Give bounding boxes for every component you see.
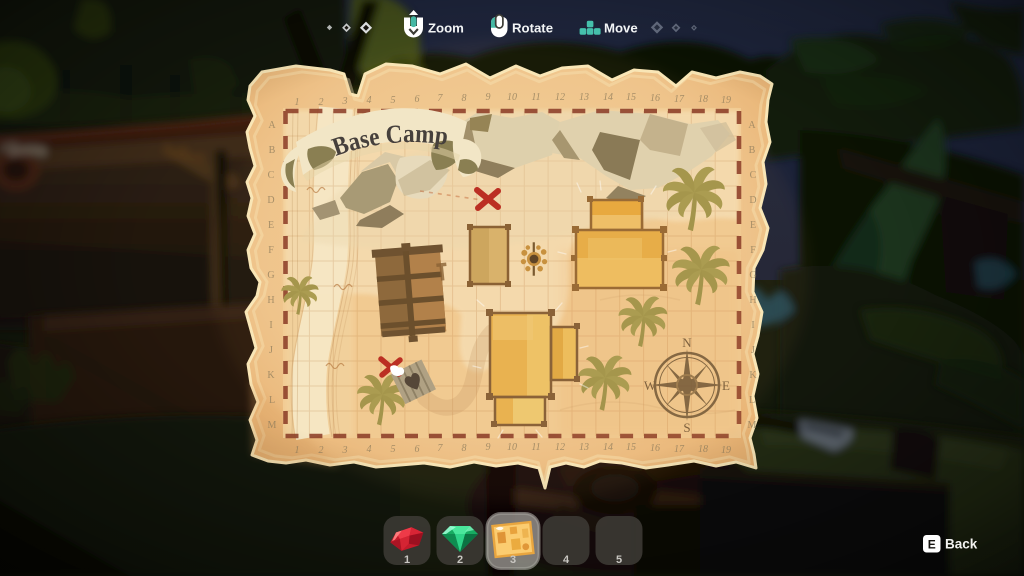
svg-text:4: 4: [563, 554, 570, 566]
svg-text:E: E: [928, 538, 936, 552]
svg-text:Back: Back: [945, 537, 978, 552]
svg-text:Zoom: Zoom: [428, 21, 464, 36]
svg-text:Rotate: Rotate: [512, 21, 553, 36]
svg-text:Move: Move: [604, 21, 638, 36]
svg-text:3: 3: [510, 554, 516, 566]
svg-text:2: 2: [457, 554, 463, 566]
svg-text:5: 5: [616, 554, 622, 566]
svg-text:1: 1: [404, 554, 410, 566]
